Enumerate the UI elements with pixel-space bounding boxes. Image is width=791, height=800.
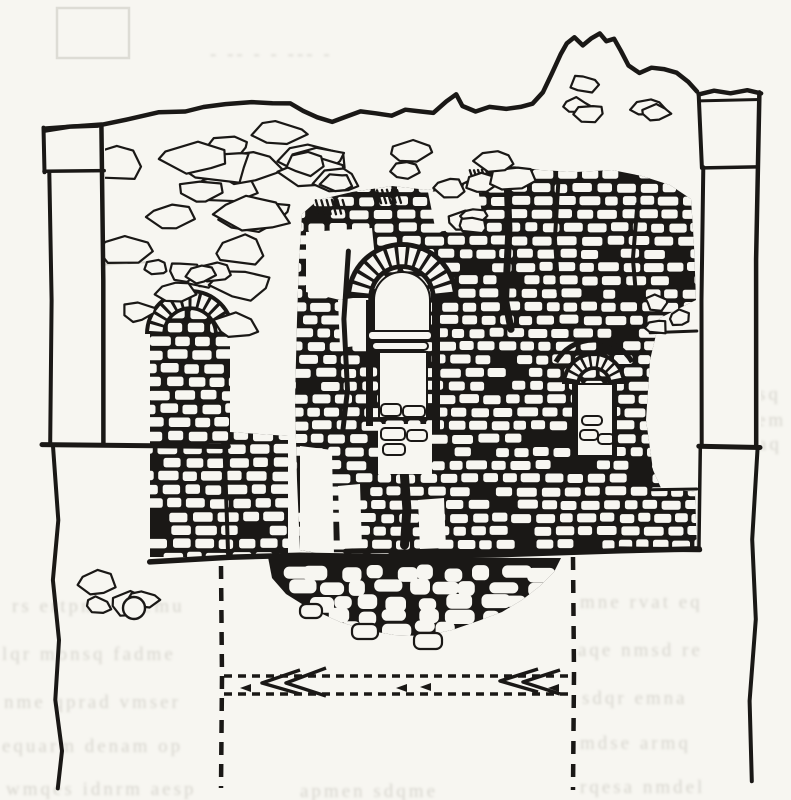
bleed-through-text: rqesa nmdel <box>580 777 705 798</box>
ruin-elevation-svg: rs ertpnm ademumne rvat eqlqr monsq fadm… <box>0 0 791 800</box>
bleed-through-text: apmen sdqme <box>300 781 438 800</box>
bleed-through-text: wmqes idnrm aesp <box>6 779 196 800</box>
bleed-through-text: sq <box>758 384 781 405</box>
bleed-through-text: mdse armq <box>580 733 691 754</box>
bleed-through-text: - -- - - --- - <box>210 44 333 65</box>
bleed-through-text: lqr monsq fadme <box>2 644 176 665</box>
scanned-figure: rs ertpnm ademumne rvat eqlqr monsq fadm… <box>0 0 791 800</box>
bleed-through-text: sdqr emna <box>582 688 688 709</box>
bleed-through-text: nme qprad vmser <box>4 692 181 713</box>
bleed-through-text: em <box>757 410 786 431</box>
bleed-through-text: mne rvat eq <box>580 592 703 613</box>
bleed-through-text: aq <box>758 434 782 455</box>
bleed-through-text: aqe nmsd re <box>578 640 703 661</box>
bleed-through-text: equarm denam op <box>2 736 183 757</box>
section-line-left <box>221 566 222 788</box>
